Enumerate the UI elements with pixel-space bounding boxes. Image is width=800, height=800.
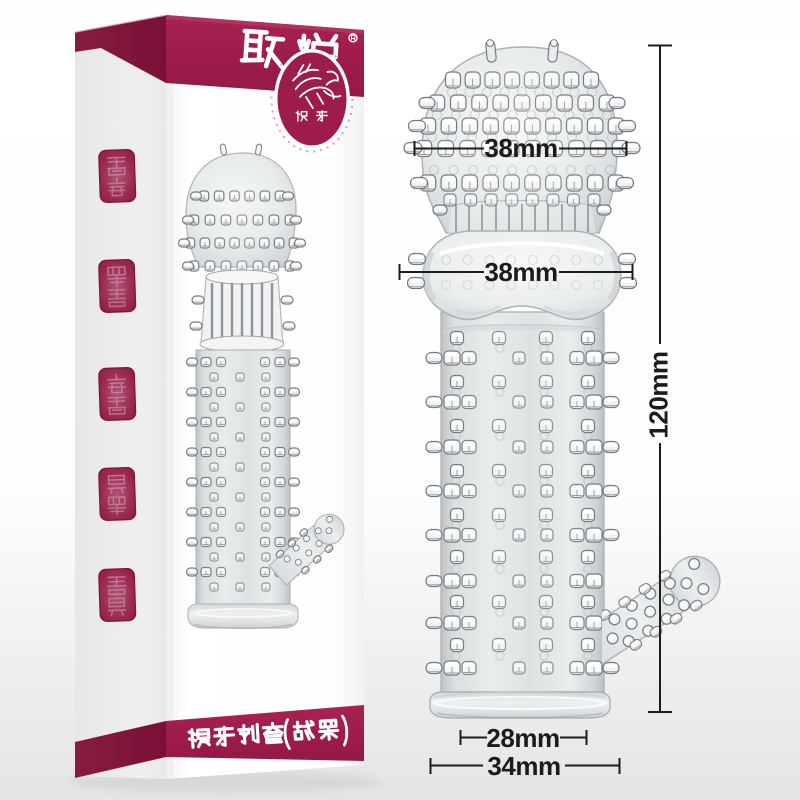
svg-text:34mm: 34mm bbox=[487, 751, 560, 781]
svg-text:28mm: 28mm bbox=[486, 723, 559, 753]
svg-text:120mm: 120mm bbox=[644, 351, 674, 438]
svg-text:38mm: 38mm bbox=[484, 257, 557, 287]
svg-text:38mm: 38mm bbox=[484, 133, 557, 163]
